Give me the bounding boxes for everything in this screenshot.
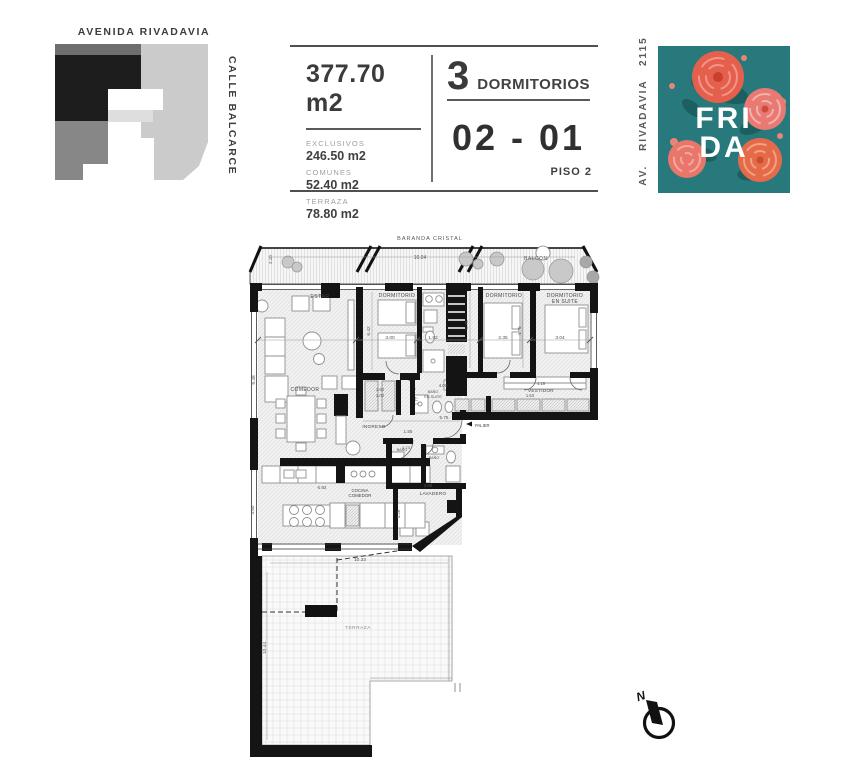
dim-bano-suite-h: 1.77 xyxy=(414,396,419,405)
label-palier: PALIER xyxy=(475,423,490,428)
compass-north-label: N xyxy=(634,688,647,704)
palier-arrow-icon xyxy=(466,422,472,427)
dim-vestidor-h: 1.63 xyxy=(526,393,535,398)
dim-ingreso-w: 5.75 xyxy=(440,415,449,420)
dim-ingreso-h: 1.55 xyxy=(404,429,413,434)
bed2-furniture xyxy=(484,303,522,358)
dim-dorm2-w: 2.35 xyxy=(498,335,508,341)
dim-vestidor-w: 4.19 xyxy=(537,381,546,386)
label-bano-suite-2: EN SUITE xyxy=(424,395,442,399)
dim-suite-h: 4.75 xyxy=(517,326,523,336)
terrace: 10.33 10.44 TERRAZA xyxy=(262,549,460,745)
label-ingreso: INGRESO xyxy=(362,424,385,429)
baranda-label: BARANDA CRISTAL xyxy=(397,236,463,242)
dim-cocina-w: 6.92 xyxy=(318,485,327,490)
balcony: 16.04 BALCON 2.10 BARANDA CRISTAL xyxy=(250,236,599,284)
label-dormitorio-1: DORMITORIO xyxy=(379,293,415,299)
north-compass: N xyxy=(634,688,673,737)
floor-plan-svg: 16.04 BALCON 2.10 BARANDA CRISTAL 10.33 … xyxy=(0,0,862,771)
terrace-planter xyxy=(305,605,337,617)
label-dormitorio-2: DORMITORIO xyxy=(486,293,522,299)
label-bano-2: BAÑO xyxy=(429,455,440,460)
dim-lavadero-h: 3.26 xyxy=(396,509,401,518)
label-bano-suite-1: BAÑO xyxy=(428,389,439,394)
label-lavadero: LAVADERO xyxy=(420,491,447,496)
label-comedor: COMEDOR xyxy=(291,387,320,393)
dim-suite-w: 3.04 xyxy=(555,335,565,341)
label-estar: ESTAR xyxy=(310,294,329,300)
terrace-width-dim: 10.33 xyxy=(354,557,366,563)
terrace-height-dim: 10.44 xyxy=(262,642,268,654)
suite-bed-furniture xyxy=(545,305,588,353)
terraza-label: TERRAZA xyxy=(345,625,371,631)
dim-bano-w: 1.73 xyxy=(402,445,411,450)
dim-cocina-h: 3.60 xyxy=(250,505,255,514)
dim-closet-w: 1.60 xyxy=(376,387,385,392)
dim-estar-h: 9.48 xyxy=(251,375,257,385)
kitchen-counter xyxy=(262,466,430,483)
dim-dorm1-w: 3.00 xyxy=(385,335,395,341)
label-cocina-2: COMEDOR xyxy=(349,493,372,498)
balcon-label: BALCON xyxy=(524,256,548,262)
dim-closet-w2: 1.00 xyxy=(376,393,385,398)
dim-pasillo-w: 1.82 xyxy=(428,335,438,341)
dim-dorm2-h: 5.75 xyxy=(464,320,470,330)
dim-bano-suite-w: 4.00 xyxy=(439,383,448,388)
kitchen-island xyxy=(283,503,425,528)
label-suite-2: EN SUITE xyxy=(552,299,579,305)
dim-lavadero-w: 3.69 xyxy=(424,483,433,488)
balcony-left-dim: 2.10 xyxy=(268,255,273,264)
dim-dorm1-h: 6.42 xyxy=(366,326,372,336)
balcony-width-dim: 16.04 xyxy=(414,255,427,261)
